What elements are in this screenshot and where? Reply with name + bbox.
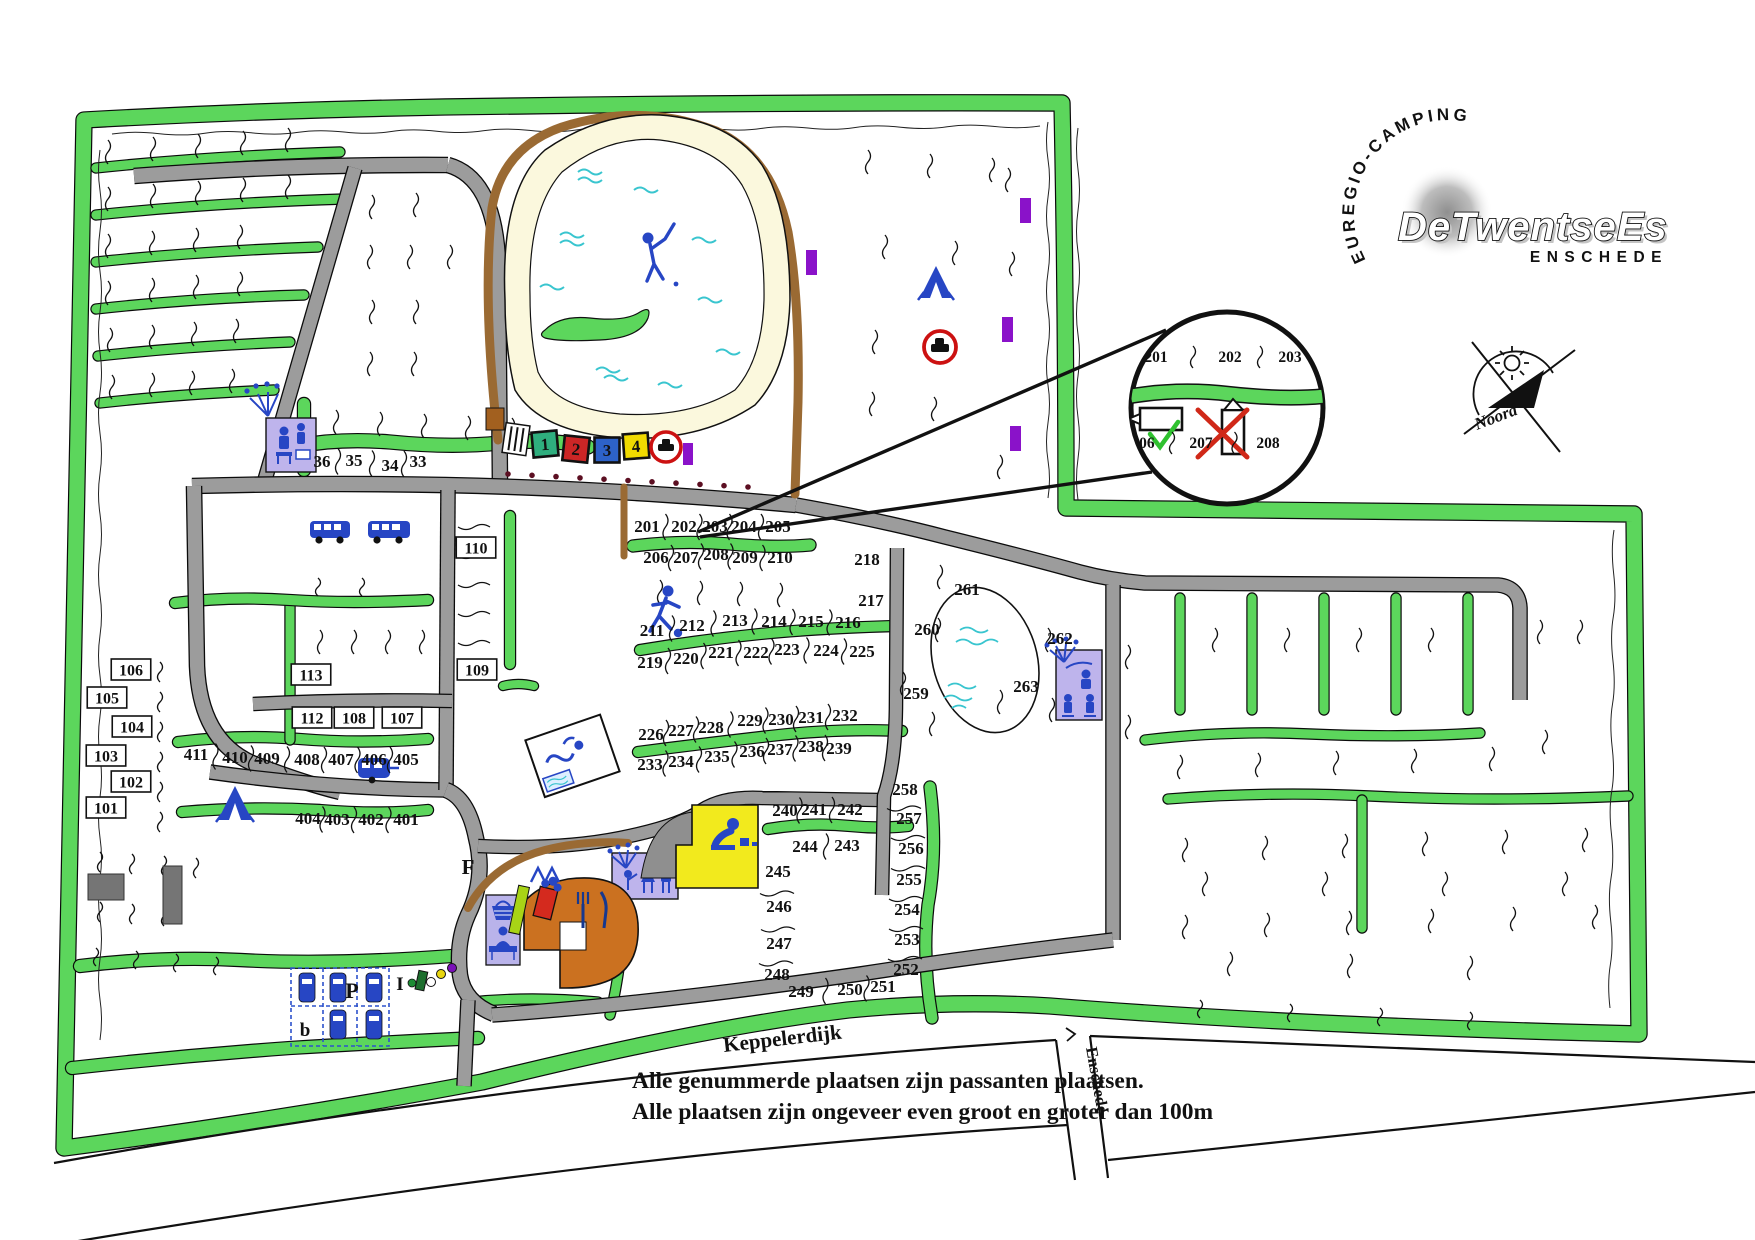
plot-label: 235 (704, 747, 730, 766)
logo-brand-text: DeTwentseEs (1398, 205, 1668, 249)
plot-label: 227 (668, 721, 694, 740)
note-line-1: Alle genummerde plaatsen zijn passanten … (632, 1068, 1144, 1094)
plot-label: 110 (464, 541, 487, 558)
barn-building (88, 874, 124, 900)
legend-square: 1 (531, 430, 558, 457)
tent-icon (918, 266, 954, 300)
brand-logo: EUREGIO-CAMPING DeTwentseEs DeTwentseEs … (1339, 105, 1671, 267)
plot-label: 226 (638, 725, 664, 744)
utility-marker-icon (1020, 198, 1031, 223)
plot-label: 260 (914, 620, 940, 639)
plot-label: 237 (767, 740, 793, 759)
plot-label: 212 (679, 616, 705, 635)
plot-label: 238 (798, 737, 824, 756)
plot-label: 208 (1256, 435, 1280, 452)
plot-label: 214 (761, 612, 787, 631)
compass-rose: Noord (1464, 342, 1575, 452)
plot-label: 262 (1047, 629, 1073, 648)
legend-square: 3 (595, 438, 620, 463)
plot-label: 101 (94, 801, 118, 818)
plot-label: 241 (801, 800, 827, 819)
no-cars-sign-icon (651, 432, 681, 462)
plot-label: 218 (854, 550, 880, 569)
camping-map-page: 1234 (0, 0, 1755, 1240)
plot-label: 223 (774, 640, 800, 659)
plot-label: 261 (954, 580, 980, 599)
plot-label: 207 (673, 548, 699, 567)
plot-label: 246 (766, 897, 792, 916)
plot-label: 207 (1189, 435, 1213, 452)
legend-square-number: 1 (540, 435, 550, 455)
plot-label: 206 (643, 548, 669, 567)
parking-small-label: b (300, 1020, 311, 1041)
plot-label: 105 (95, 691, 119, 708)
plot-label: 258 (892, 780, 918, 799)
campground-site-map: 1234 (0, 0, 1755, 1240)
plot-label: 208 (703, 545, 729, 564)
plot-label: 249 (788, 982, 814, 1001)
plot-label: 217 (858, 591, 884, 610)
plot-label: 222 (743, 643, 769, 662)
plot-label: 35 (346, 451, 363, 470)
legend-square-number: 3 (603, 441, 612, 460)
plot-label: 213 (722, 611, 748, 630)
plot-label: 201 (634, 517, 660, 536)
plot-label: 250 (837, 980, 863, 999)
direction-arrow-icon (1066, 1028, 1075, 1041)
legend-square: 4 (623, 433, 650, 460)
barn-building (163, 866, 182, 924)
plot-label: 240 (772, 801, 798, 820)
utility-marker-icon (683, 443, 693, 465)
plot-label: 263 (1013, 677, 1039, 696)
plot-label: 210 (767, 548, 793, 567)
utility-marker-icon (1002, 317, 1013, 342)
plot-label: 211 (640, 621, 665, 640)
marker-dot-icon (437, 970, 446, 979)
plot-label: 257 (896, 809, 922, 828)
parking-area: P b (291, 968, 389, 1046)
plot-label: 103 (94, 749, 118, 766)
plot-label: 403 (324, 810, 350, 829)
dishwashing-station-icon (641, 805, 758, 888)
plot-label: 102 (119, 775, 143, 792)
plot-label: 408 (294, 750, 320, 769)
camper-icon (368, 521, 410, 544)
gate-icon (502, 423, 530, 456)
plot-label: 402 (358, 810, 384, 829)
marker-dot-icon (448, 964, 457, 973)
plot-label: 409 (254, 749, 280, 768)
marker-dot-icon (427, 978, 436, 987)
plot-label: 109 (465, 663, 489, 680)
plot-label: 248 (764, 965, 790, 984)
plot-label: 406 (361, 750, 387, 769)
plot-label: 106 (119, 663, 143, 680)
plot-label: 108 (342, 711, 366, 728)
plot-label: 228 (698, 718, 724, 737)
plot-label: 234 (668, 752, 694, 771)
tent-field-markers (918, 266, 956, 363)
plot-label: 107 (390, 711, 414, 728)
plot-label: 203 (1278, 349, 1302, 366)
barrier-icon (415, 970, 428, 990)
plot-label: 253 (894, 930, 920, 949)
reception-label: I (396, 974, 403, 995)
plot-label: 259 (903, 684, 929, 703)
shed-building (486, 408, 504, 430)
plot-label: 251 (870, 977, 896, 996)
plot-label: 112 (300, 711, 323, 728)
plot-label: 407 (328, 750, 354, 769)
field-label: F (462, 855, 475, 879)
swimming-pool-icon (525, 715, 619, 797)
plot-label: 236 (739, 742, 765, 761)
pond (505, 115, 791, 439)
no-cars-sign-icon (924, 331, 956, 363)
plot-label: 256 (898, 839, 924, 858)
plot-label: 230 (768, 710, 794, 729)
logo-city-text: ENSCHEDE (1530, 249, 1668, 266)
dry-pond-area (915, 575, 1056, 746)
plot-label: 231 (798, 708, 824, 727)
plot-label: 104 (120, 720, 144, 737)
plot-label: 404 (295, 809, 321, 828)
plot-label: 34 (382, 456, 400, 475)
plot-label: 411 (184, 745, 209, 764)
plot-label: 216 (835, 613, 861, 632)
parking-label: P (345, 978, 358, 1003)
plot-label: 219 (637, 653, 663, 672)
plot-label: 202 (1218, 349, 1242, 366)
utility-marker-icon (806, 250, 817, 275)
plot-label: 243 (834, 836, 860, 855)
plot-label: 254 (894, 900, 920, 919)
plot-label: 232 (832, 706, 858, 725)
plot-label: 245 (765, 862, 791, 881)
reception-dot-icon (408, 979, 416, 987)
plot-label: 229 (737, 711, 763, 730)
plot-label: 247 (766, 934, 792, 953)
note-line-2: Alle plaatsen zijn ongeveer even groot e… (632, 1099, 1214, 1125)
legend-square: 2 (562, 435, 589, 462)
plot-label: 202 (671, 517, 697, 536)
utility-marker-icon (1010, 426, 1021, 451)
reception-markers: I (396, 964, 456, 996)
plot-label: 405 (393, 750, 419, 769)
street-layer (25, 1028, 1755, 1240)
plot-label: 239 (826, 739, 852, 758)
plot-label: 36 (314, 452, 331, 471)
camper-icon (310, 521, 350, 544)
water-ripples-icon (944, 628, 998, 709)
plot-label: 410 (222, 748, 248, 767)
plot-label: 401 (393, 810, 419, 829)
plot-label: 220 (673, 649, 699, 668)
plot-label: 215 (798, 612, 824, 631)
plot-label: 33 (410, 452, 427, 471)
plot-label: 224 (813, 641, 839, 660)
plot-label: 221 (708, 643, 734, 662)
plot-label: 233 (637, 755, 663, 774)
plot-label: 244 (792, 837, 818, 856)
compass-needle-icon (1488, 370, 1544, 408)
plot-label: 209 (732, 548, 758, 567)
plot-label: 242 (837, 800, 863, 819)
plot-label: 252 (893, 960, 919, 979)
plot-label: 225 (849, 642, 875, 661)
plot-label: 255 (896, 870, 922, 889)
plot-label: 113 (299, 668, 322, 685)
